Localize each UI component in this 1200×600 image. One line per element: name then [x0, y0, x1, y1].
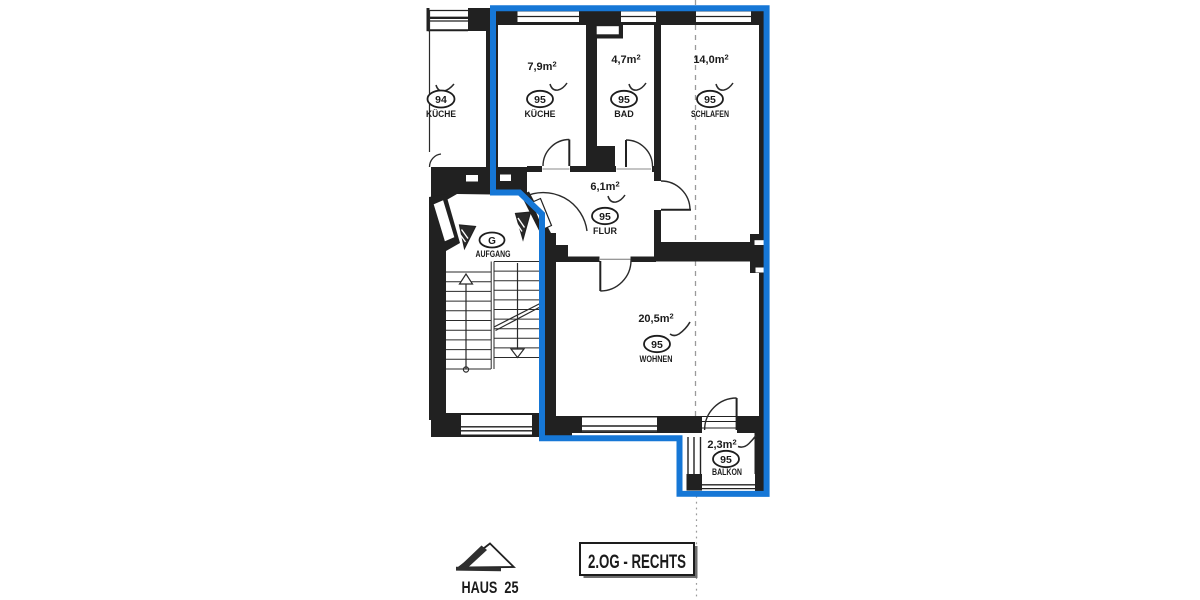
svg-text:2.OG - RECHTS: 2.OG - RECHTS [588, 552, 686, 573]
svg-text:HAUS 25: HAUS 25 [462, 579, 519, 597]
